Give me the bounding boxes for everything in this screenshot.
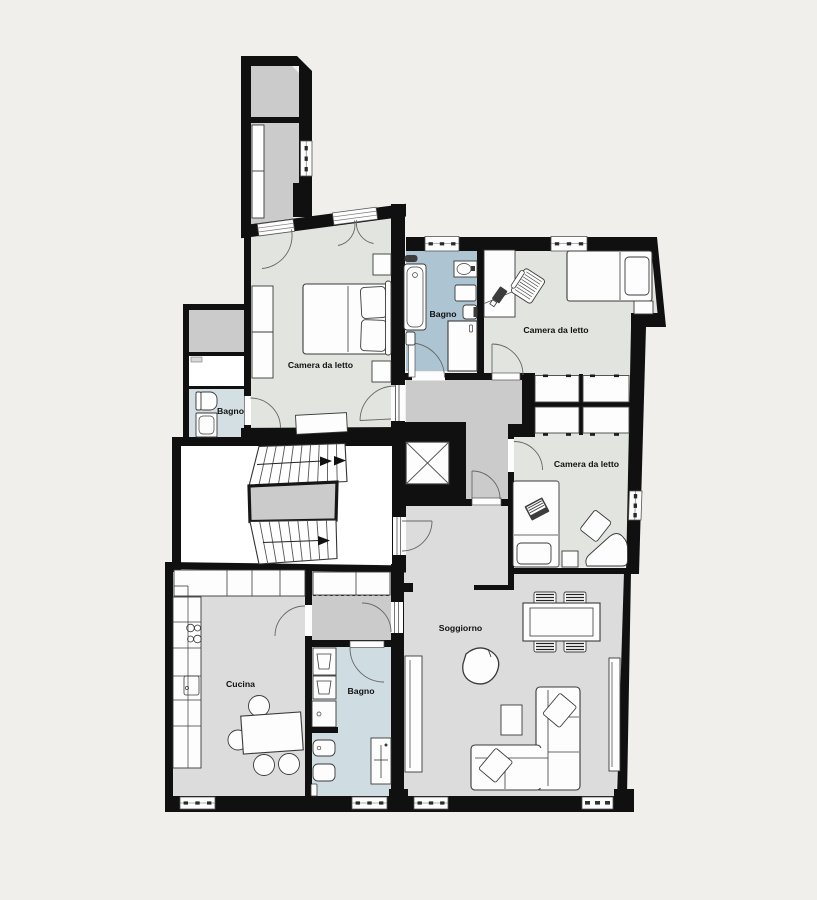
- svg-text:Soggiorno: Soggiorno: [439, 623, 482, 633]
- svg-text:Camera da letto: Camera da letto: [523, 325, 588, 335]
- svg-text:Bagno: Bagno: [429, 309, 456, 319]
- svg-text:Camera da letto: Camera da letto: [554, 459, 619, 469]
- svg-text:Bagno: Bagno: [347, 686, 374, 696]
- svg-text:Camera da letto: Camera da letto: [288, 360, 353, 370]
- svg-text:Cucina: Cucina: [226, 679, 255, 689]
- svg-text:Bagno: Bagno: [217, 406, 244, 416]
